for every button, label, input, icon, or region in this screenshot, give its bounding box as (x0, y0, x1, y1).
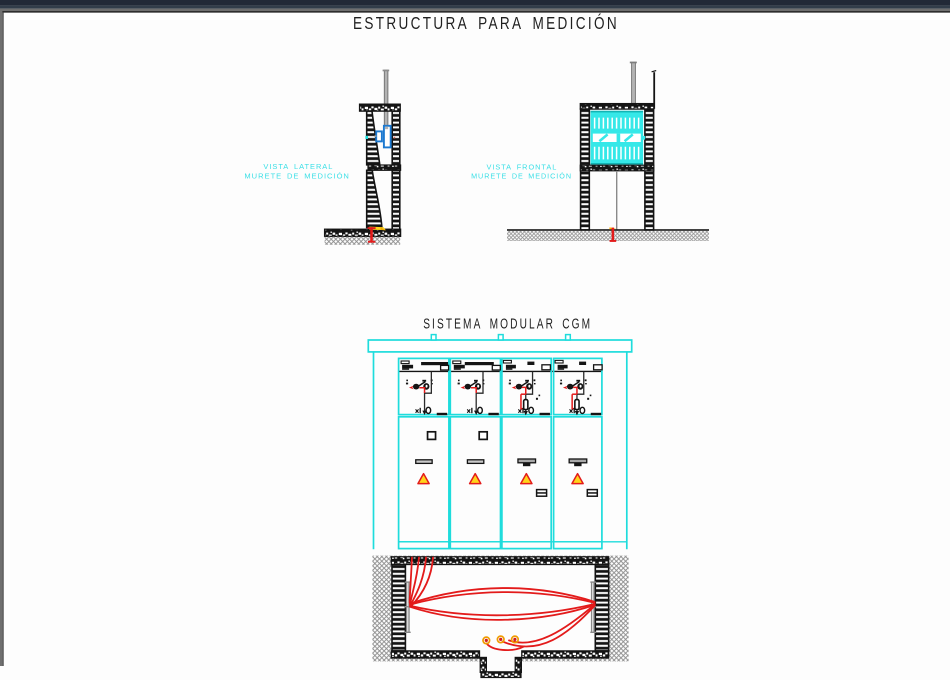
svg-text:ESTRUCTURA PARA MEDICIÓN: ESTRUCTURA PARA MEDICIÓN (353, 12, 619, 33)
svg-text:MURETE DE MEDICIÓN: MURETE DE MEDICIÓN (471, 172, 572, 181)
svg-text:VISTA LATERAL: VISTA LATERAL (263, 162, 333, 171)
svg-text:VISTA FRONTAL: VISTA FRONTAL (487, 163, 558, 172)
svg-text:SISTEMA MODULAR CGM: SISTEMA MODULAR CGM (423, 316, 592, 332)
svg-text:MURETE DE MEDICIÓN: MURETE DE MEDICIÓN (244, 172, 350, 181)
